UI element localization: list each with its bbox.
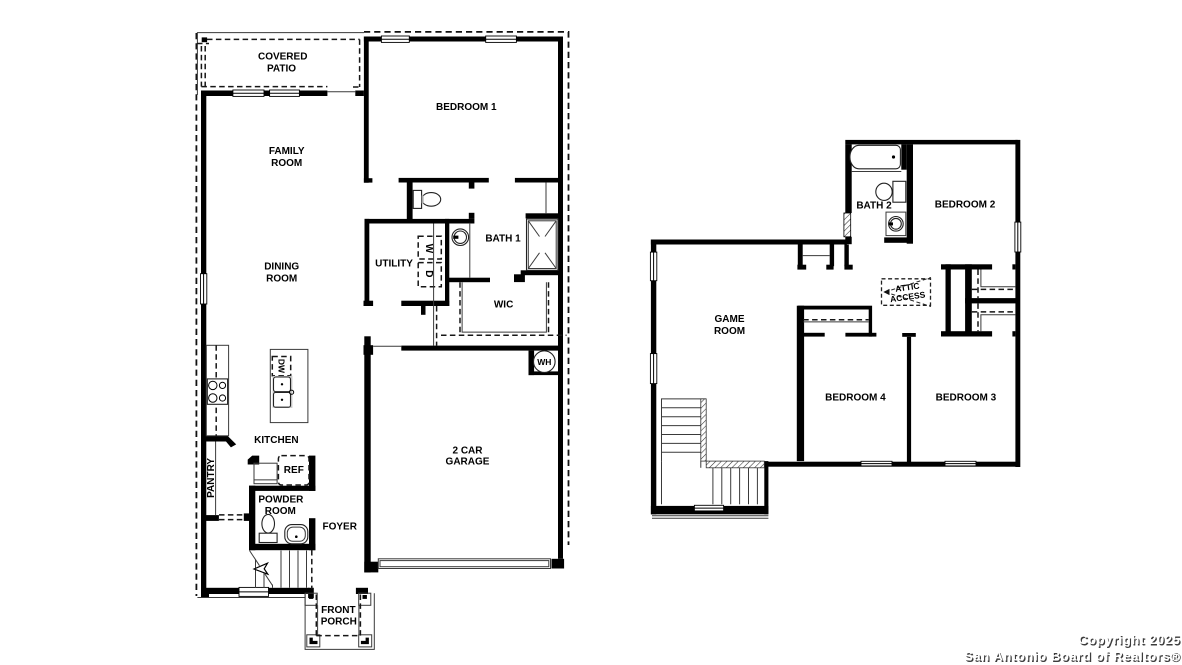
svg-text:GAME: GAME [715, 314, 745, 325]
svg-text:WH: WH [537, 357, 551, 367]
svg-text:ROOM: ROOM [266, 273, 297, 284]
svg-text:ROOM: ROOM [714, 326, 745, 337]
svg-text:PORCH: PORCH [321, 617, 357, 628]
svg-text:BEDROOM 2: BEDROOM 2 [935, 200, 996, 211]
svg-text:PATIO: PATIO [267, 64, 296, 75]
svg-text:W: W [423, 244, 434, 254]
svg-text:DW: DW [277, 359, 287, 374]
svg-text:DINING: DINING [264, 261, 299, 272]
svg-text:BATH 2: BATH 2 [856, 201, 892, 212]
svg-text:FAMILY: FAMILY [269, 146, 305, 157]
svg-text:GARAGE: GARAGE [446, 457, 490, 468]
svg-text:ROOM: ROOM [271, 158, 302, 169]
svg-text:Copyright 2025: Copyright 2025 [1078, 632, 1180, 647]
svg-text:KITCHEN: KITCHEN [254, 435, 298, 446]
svg-text:BATH 1: BATH 1 [485, 234, 521, 245]
svg-text:FRONT: FRONT [321, 605, 355, 616]
svg-text:UTILITY: UTILITY [375, 259, 413, 270]
svg-text:D: D [423, 270, 434, 277]
svg-text:San Antonio Board of Realtors®: San Antonio Board of Realtors® [964, 649, 1180, 664]
svg-text:REF: REF [284, 465, 304, 476]
svg-text:BEDROOM 4: BEDROOM 4 [825, 392, 886, 403]
svg-text:WIC: WIC [494, 300, 513, 311]
svg-text:POWDER: POWDER [258, 495, 304, 506]
svg-text:ROOM: ROOM [265, 506, 296, 517]
svg-text:2 CAR: 2 CAR [452, 446, 483, 457]
svg-text:COVERED: COVERED [258, 52, 307, 63]
svg-text:BEDROOM 3: BEDROOM 3 [936, 392, 997, 403]
svg-text:PANTRY: PANTRY [206, 458, 217, 498]
svg-text:FOYER: FOYER [322, 521, 357, 532]
svg-text:BEDROOM 1: BEDROOM 1 [436, 102, 497, 113]
